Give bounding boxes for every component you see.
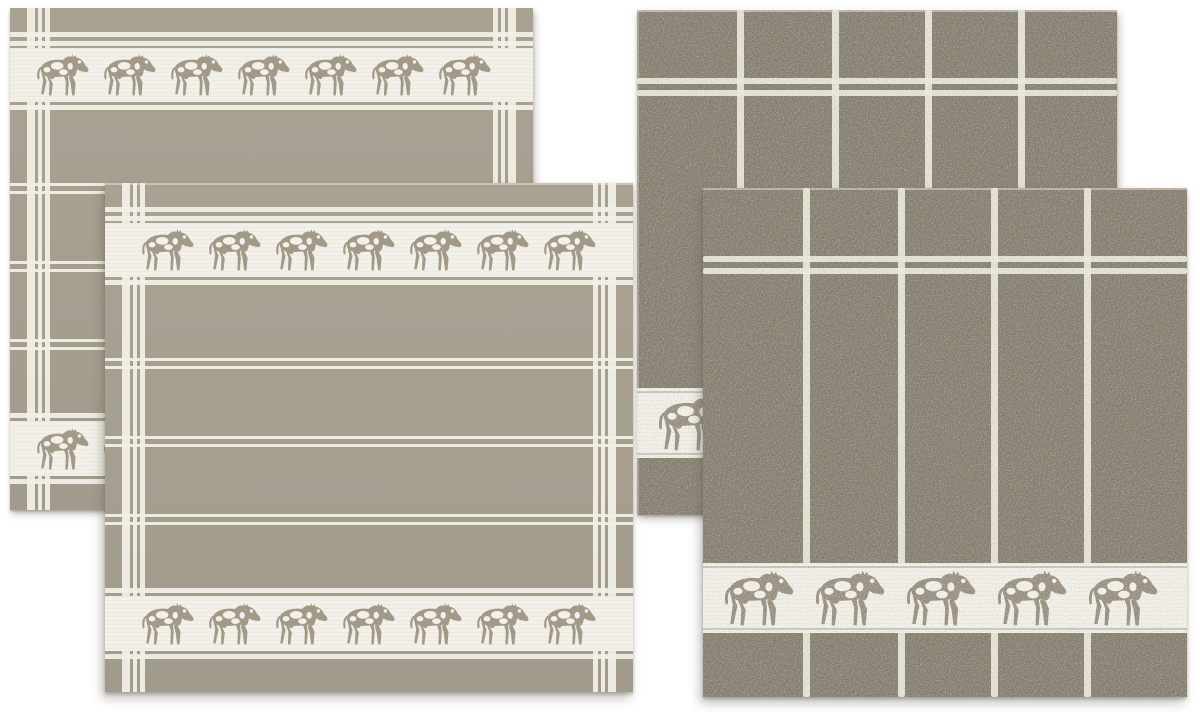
horizontal-stripe [105, 436, 633, 439]
cow-icon [339, 227, 397, 274]
cow-border-band [105, 596, 633, 651]
cow-icon [138, 227, 196, 274]
tea-towel-front [105, 183, 633, 692]
horizontal-stripe [105, 358, 633, 361]
cow-icon [435, 52, 493, 99]
cow-icon [990, 570, 1072, 628]
cow-icon [717, 570, 799, 628]
band-edge-line [703, 566, 1187, 568]
cow-icon [272, 601, 330, 648]
horizontal-stripe [105, 216, 633, 221]
horizontal-stripe [703, 256, 1187, 262]
horizontal-stripe [105, 588, 633, 593]
horizontal-stripe [105, 522, 633, 525]
horizontal-stripe [703, 268, 1187, 274]
cow-icon [205, 227, 263, 274]
cow-icon [167, 52, 225, 99]
cow-icon [272, 227, 330, 274]
horizontal-stripe [105, 514, 633, 517]
cow-icon [406, 601, 464, 648]
cow-icon [899, 570, 981, 628]
cow-icon [33, 426, 91, 473]
cow-border-band [105, 223, 633, 277]
horizontal-stripe [105, 280, 633, 285]
horizontal-stripe [637, 78, 1117, 84]
cow-icon [368, 52, 426, 99]
cow-icon [808, 570, 890, 628]
cow-icon [540, 227, 598, 274]
cow-icon [100, 52, 158, 99]
horizontal-stripe [10, 105, 533, 110]
cow-icon [234, 52, 292, 99]
horizontal-stripe [10, 32, 533, 37]
horizontal-stripe [105, 366, 633, 369]
horizontal-stripe [10, 41, 533, 46]
cow-icon [301, 52, 359, 99]
cow-icon [406, 227, 464, 274]
cow-border-band [703, 563, 1187, 633]
cow-icon [473, 601, 531, 648]
cow-icon [473, 227, 531, 274]
cow-border-band [10, 48, 533, 102]
horizontal-stripe [637, 90, 1117, 96]
horizontal-stripe [105, 444, 633, 447]
cow-icon [339, 601, 397, 648]
horizontal-stripe [105, 654, 633, 659]
horizontal-stripe [105, 207, 633, 212]
cow-icon [33, 52, 91, 99]
cow-icon [138, 601, 196, 648]
cow-icon [540, 601, 598, 648]
cow-icon [205, 601, 263, 648]
terry-towel-front [703, 188, 1187, 697]
band-edge-line [703, 628, 1187, 630]
product-photo-stage [0, 0, 1200, 712]
cow-icon [1081, 570, 1163, 628]
